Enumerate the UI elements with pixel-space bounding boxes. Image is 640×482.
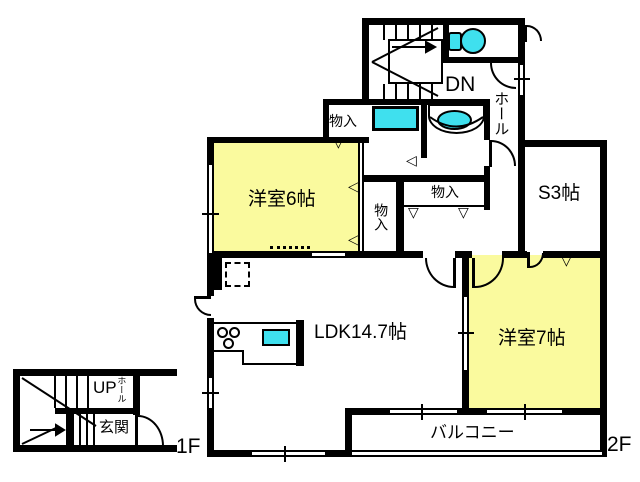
wall (484, 166, 490, 210)
wall (207, 450, 252, 457)
stairs-2f-down (372, 25, 442, 99)
dotted-line (270, 246, 310, 249)
entrance-label: 玄関 (99, 419, 129, 436)
stairs-dn-label: DN (445, 73, 475, 97)
room-label-western7: 洋室7帖 (498, 328, 566, 350)
slide-marker-icon: ◁ (348, 233, 359, 247)
slide-marker-icon: ▽ (458, 206, 469, 220)
slide-marker-icon: ◁ (406, 154, 417, 168)
wall (93, 414, 95, 445)
wall (207, 251, 312, 258)
slide-marker-icon: ▽ (333, 136, 344, 150)
wall (518, 140, 525, 258)
room-label-balcony: バルコニー (430, 423, 515, 443)
room-label-ldk: LDK14.7帖 (314, 322, 407, 344)
wall (543, 251, 607, 258)
wall (325, 450, 352, 457)
door-washroom (491, 140, 516, 166)
bathtub-icon (372, 106, 419, 131)
door-exterior-top (527, 25, 542, 41)
window-tick (202, 213, 219, 215)
wall (214, 258, 222, 290)
window (207, 165, 214, 253)
washbasin-icon (437, 110, 472, 130)
wall (362, 18, 525, 25)
toilet-icon (460, 28, 486, 54)
floor-label-2f: 2F (607, 433, 632, 457)
wall (13, 369, 20, 452)
slide-marker-icon: ▽ (561, 254, 572, 268)
wall (207, 137, 369, 143)
closet-hall-label: 物入 (431, 184, 459, 200)
window-tick (458, 332, 474, 334)
door-toilet (490, 63, 516, 89)
closet-mid-label: 物入 (373, 203, 389, 249)
window-tick (284, 446, 286, 462)
wall (518, 95, 525, 145)
gas-stove-icon (217, 327, 228, 338)
door-ldk (425, 258, 454, 288)
wall (358, 175, 490, 182)
window-tick (514, 78, 530, 80)
wall (457, 408, 487, 415)
wall (66, 414, 74, 445)
balcony-railing (352, 450, 602, 457)
wall (421, 99, 427, 158)
wall (296, 320, 304, 366)
window (252, 450, 325, 457)
wall (362, 18, 369, 105)
slide-marker-icon: ▽ (408, 206, 419, 220)
floor-plan-canvas: ▽ ◁ ◁ ◁ ▽ ▽ ▽ 洋室6帖 S3帖 LDK14.7帖 洋室7帖 バルコ… (0, 0, 640, 482)
wall (396, 175, 404, 258)
window-tick (524, 404, 526, 420)
window (518, 65, 525, 95)
opening (312, 251, 345, 258)
hall-1f-label: ホール (116, 376, 126, 414)
wall (562, 408, 607, 415)
window-tick (421, 404, 423, 420)
refrigerator-icon (225, 262, 250, 287)
floor-label-1f: 1F (176, 435, 201, 459)
wall (345, 251, 423, 258)
window (390, 408, 457, 415)
wall (462, 251, 469, 297)
hall-2f-label: ホール (492, 91, 509, 143)
wall (207, 253, 214, 296)
gas-stove-icon (229, 327, 240, 338)
wall (207, 137, 214, 165)
wall (13, 369, 177, 376)
door-entrance-1f (138, 415, 164, 446)
slide-marker-icon: ◁ (348, 180, 359, 194)
room-label-s3: S3帖 (538, 183, 580, 205)
closet-top-label: 物入 (329, 113, 357, 129)
kitchen-sink-icon (262, 329, 290, 346)
room-label-western6: 洋室6帖 (248, 189, 316, 211)
door-ldk-exterior (194, 299, 211, 316)
stairs-up-label: UP (93, 378, 117, 398)
kitchen-counter-lip (242, 350, 302, 365)
gas-stove-icon (223, 338, 234, 349)
wall (13, 445, 177, 452)
window-tick (202, 392, 219, 394)
wall (518, 140, 607, 147)
